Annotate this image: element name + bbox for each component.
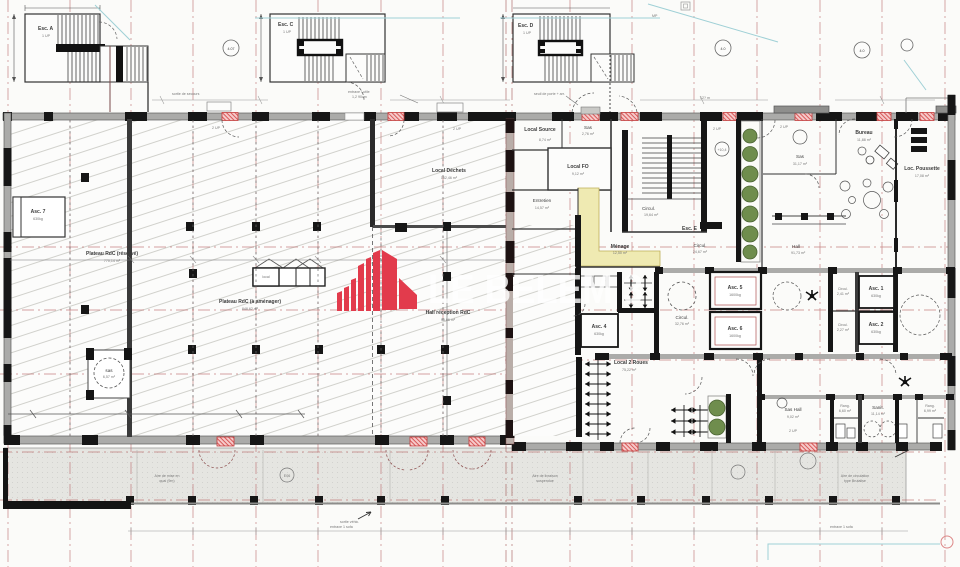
svg-text:quai (9m): quai (9m) [159, 479, 174, 483]
svg-text:LE BELÉM 3: LE BELÉM 3 [428, 266, 643, 312]
svg-text:162,46 m²: 162,46 m² [441, 176, 458, 180]
svg-text:type Brutalise: type Brutalise [844, 479, 866, 483]
svg-text:E06: E06 [284, 474, 290, 478]
svg-text:630kg: 630kg [871, 294, 881, 298]
svg-text:75,22 m²: 75,22 m² [622, 368, 637, 372]
svg-text:6,99 m²: 6,99 m² [924, 409, 937, 413]
svg-text:sortie de secours: sortie de secours [172, 92, 200, 96]
svg-text:91,73 m²: 91,73 m² [791, 251, 806, 255]
svg-text:Esc. C: Esc. C [278, 22, 294, 28]
svg-text:Sas: Sas [796, 154, 805, 159]
svg-text:Rang.: Rang. [840, 404, 850, 408]
svg-text:Asc. 2: Asc. 2 [869, 322, 884, 328]
svg-text:Bureau: Bureau [855, 130, 872, 136]
svg-text:31,17 m²: 31,17 m² [793, 162, 808, 166]
svg-text:Asc. 4: Asc. 4 [592, 324, 607, 330]
svg-text:17,08 m²: 17,08 m² [915, 174, 930, 178]
svg-text:630kg: 630kg [871, 330, 881, 334]
svg-text:Circul.: Circul. [642, 206, 655, 211]
svg-text:2,41 m²: 2,41 m² [837, 292, 850, 296]
svg-text:Plateau RdC (à aménager): Plateau RdC (à aménager) [219, 299, 281, 305]
svg-text:+10,4: +10,4 [717, 148, 726, 152]
svg-text:2 UP: 2 UP [713, 127, 722, 131]
svg-text:11,14 m²: 11,14 m² [871, 412, 886, 416]
svg-text:Loc. Poussette: Loc. Poussette [904, 166, 940, 172]
svg-text:Plateau RdC (réservé): Plateau RdC (réservé) [86, 251, 138, 257]
svg-text:4.07: 4.07 [228, 47, 235, 51]
svg-text:12? m: 12? m [700, 96, 710, 100]
svg-text:Ménage: Ménage [611, 244, 630, 250]
svg-text:1,2 90cm: 1,2 90cm [352, 95, 367, 99]
svg-text:4.0: 4.0 [721, 47, 726, 51]
svg-text:Sanit.: Sanit. [872, 405, 884, 410]
svg-text:1600kg: 1600kg [729, 334, 741, 338]
svg-text:6,60 m²: 6,60 m² [839, 409, 852, 413]
svg-text:seuil de porte + arr.: seuil de porte + arr. [534, 92, 565, 96]
svg-text:MP: MP [652, 14, 658, 18]
svg-text:suspendue: suspendue [536, 479, 554, 483]
svg-text:1 UP: 1 UP [42, 34, 51, 38]
svg-text:Aire de livraison: Aire de livraison [532, 474, 558, 478]
svg-text:1 UP: 1 UP [523, 31, 532, 35]
svg-text:Asc. 6: Asc. 6 [728, 326, 743, 332]
svg-text:1600kg: 1600kg [729, 293, 741, 297]
svg-text:Aire de circulation: Aire de circulation [841, 474, 870, 478]
svg-text:9,12 m²: 9,12 m² [572, 172, 585, 176]
svg-text:32,76 m²: 32,76 m² [675, 322, 690, 326]
svg-text:Local FO: Local FO [567, 164, 589, 170]
svg-text:Asc. 5: Asc. 5 [728, 285, 743, 291]
svg-text:Circul.: Circul. [693, 243, 706, 248]
svg-text:entraxe 1 sofa: entraxe 1 sofa [330, 525, 353, 529]
svg-text:630kg: 630kg [33, 217, 43, 221]
svg-text:Entretien: Entretien [533, 198, 552, 203]
svg-text:Circul.: Circul. [838, 287, 848, 291]
svg-text:11,88 m²: 11,88 m² [857, 138, 872, 142]
svg-text:Esc. A: Esc. A [38, 26, 53, 32]
svg-text:12,50 m²: 12,50 m² [613, 251, 628, 255]
svg-text:Asc. 1: Asc. 1 [869, 286, 884, 292]
svg-text:Rang.: Rang. [925, 404, 935, 408]
svg-text:14,57 m²: 14,57 m² [535, 206, 550, 210]
svg-text:2 UP: 2 UP [780, 125, 789, 129]
svg-text:Local Déchets: Local Déchets [432, 168, 466, 174]
svg-text:2,27 m²: 2,27 m² [837, 328, 850, 332]
svg-text:Asc. 7: Asc. 7 [31, 209, 46, 215]
svg-text:2,76 m²: 2,76 m² [582, 132, 595, 136]
svg-text:630kg: 630kg [594, 332, 604, 336]
svg-text:entraxe 1 sofa: entraxe 1 sofa [830, 525, 853, 529]
svg-text:9,02 m²: 9,02 m² [787, 415, 800, 419]
svg-text:4.0: 4.0 [860, 49, 865, 53]
svg-text:8,74 m²: 8,74 m² [539, 138, 552, 142]
svg-text:Local Source: Local Source [524, 127, 556, 133]
svg-text:19,64 m²: 19,64 m² [644, 213, 659, 217]
svg-text:Esc. E: Esc. E [682, 226, 698, 232]
svg-text:Circul.: Circul. [838, 323, 848, 327]
svg-text:Aire de mise en: Aire de mise en [155, 474, 180, 478]
svg-text:local: local [262, 275, 270, 279]
svg-text:Circul.: Circul. [675, 315, 688, 320]
svg-text:entraxe / utile: entraxe / utile [348, 90, 370, 94]
svg-text:2 UP: 2 UP [453, 127, 462, 131]
svg-text:Sas Hall: Sas Hall [784, 407, 801, 412]
svg-text:sas: sas [105, 368, 113, 373]
svg-text:24,67 m²: 24,67 m² [693, 250, 708, 254]
svg-text:2 UP: 2 UP [212, 126, 221, 130]
svg-text:Hall: Hall [792, 244, 800, 249]
svg-text:Sas: Sas [584, 125, 593, 130]
svg-text:770,14 m²: 770,14 m² [104, 259, 121, 263]
svg-text:2 UP: 2 UP [789, 429, 798, 433]
svg-text:1 UP: 1 UP [283, 30, 292, 34]
svg-text:Esc. D: Esc. D [518, 23, 534, 29]
svg-text:sortie véhic.: sortie véhic. [340, 520, 359, 524]
svg-text:6,57 m²: 6,57 m² [103, 375, 116, 379]
svg-text:Local 2 Roues: Local 2 Roues [614, 360, 648, 366]
